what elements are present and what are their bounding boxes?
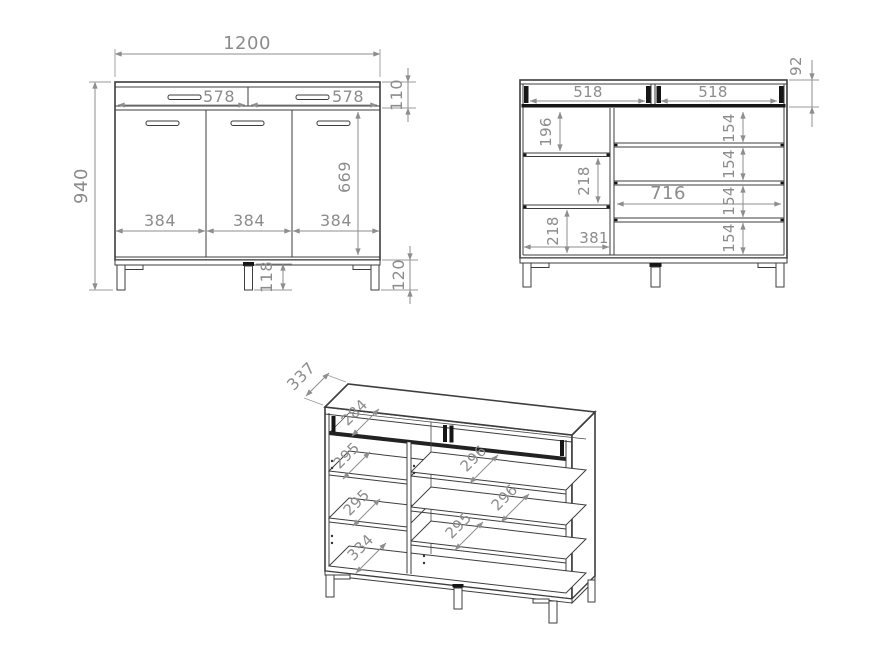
center-leg (245, 266, 253, 290)
dim-left-compartment-width: 381 (579, 229, 609, 247)
drawer-slide (646, 86, 651, 103)
dim-door-width-1: 384 (144, 211, 176, 230)
dim-left-compartment-2: 218 (575, 166, 593, 196)
drawer-slide (443, 425, 447, 442)
vertical-divider (407, 442, 411, 574)
plinth-rail (520, 258, 787, 263)
leg (531, 263, 549, 268)
drawer-handle (168, 95, 201, 100)
dim-door-height: 669 (335, 161, 354, 193)
dim-right-compartment-2: 154 (720, 149, 738, 179)
dim-right-compartment-width: 716 (650, 183, 686, 204)
leg (588, 580, 595, 602)
drawer-slide (332, 416, 336, 432)
drawer-slide (560, 440, 564, 456)
drawer-slide (657, 86, 662, 103)
drawer-slide (450, 426, 454, 443)
leg (371, 265, 379, 290)
dim-drawer-front-height: 110 (387, 79, 406, 111)
dim-drawer-inner-left: 518 (573, 83, 603, 101)
leg (533, 599, 549, 603)
drawer-slide (524, 86, 529, 103)
dim-drawer-width-left: 578 (203, 87, 235, 106)
perspective-view: 337 284 295 295 334 296 296 295 (283, 358, 595, 623)
dim-left-compartment-3: 218 (544, 216, 562, 246)
center-leg-mount (453, 584, 464, 588)
dim-total-width: 1200 (223, 33, 271, 54)
drawer-rail (522, 104, 786, 108)
dim-right-compartment-1: 154 (720, 113, 738, 143)
technical-drawing-sheet: 1200 940 578 578 110 669 384 384 384 118… (0, 0, 888, 666)
door-handle (146, 121, 179, 126)
dim-left-compartment-1: 196 (537, 117, 555, 147)
center-leg-mount (243, 262, 254, 266)
dim-total-height: 940 (71, 168, 92, 204)
leg (117, 265, 125, 290)
door-handle (317, 121, 350, 126)
dim-drawer-width-right: 578 (332, 87, 364, 106)
leg (353, 265, 371, 270)
leg (523, 263, 531, 287)
dim-leg-height: 120 (389, 259, 408, 291)
dim-drawer-inner-right: 518 (698, 83, 728, 101)
leg (326, 575, 334, 597)
drawer-slide (779, 86, 784, 103)
leg (549, 601, 557, 623)
front-view: 1200 940 578 578 110 669 384 384 384 118… (71, 33, 418, 304)
dim-right-compartment-4: 154 (720, 223, 738, 253)
leg (776, 263, 784, 287)
dim-center-leg-height: 118 (257, 261, 276, 293)
center-leg (454, 588, 462, 609)
dim-door-width-3: 384 (320, 211, 352, 230)
dim-door-width-2: 384 (233, 211, 265, 230)
dim-right-compartment-3: 154 (720, 186, 738, 216)
center-leg (651, 267, 660, 287)
internal-front-view: 518 518 92 196 218 218 381 716 154 154 1… (520, 56, 819, 287)
leg (758, 263, 776, 268)
center-leg-mount (650, 263, 662, 267)
drawer-handle (296, 95, 329, 100)
leg (334, 575, 350, 579)
door-handle (231, 121, 264, 126)
leg (125, 265, 143, 270)
furniture-dimension-drawing: 1200 940 578 578 110 669 384 384 384 118… (0, 0, 888, 666)
dim-drawer-box-height: 92 (787, 56, 805, 76)
